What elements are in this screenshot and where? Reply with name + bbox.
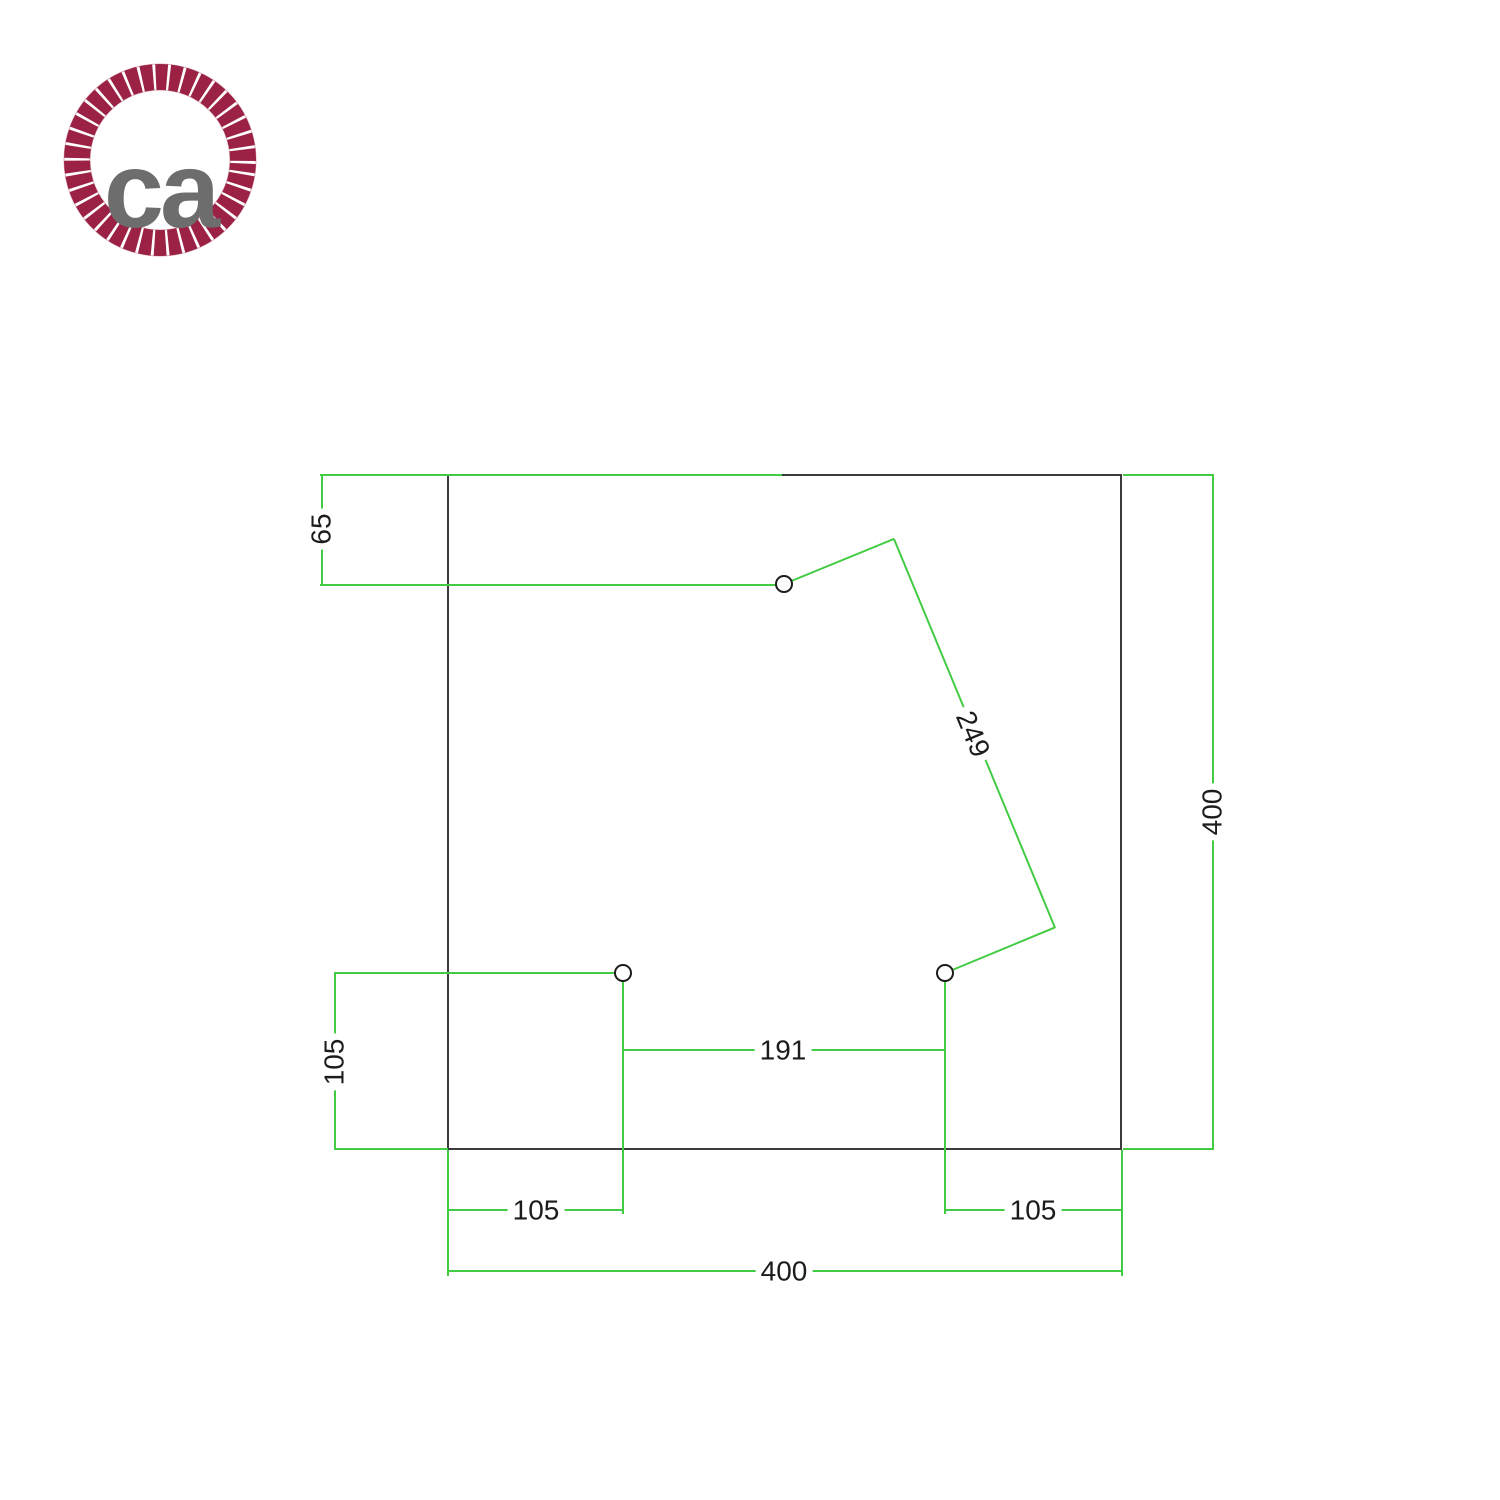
brand-logo: ca [62,62,258,258]
dim-label-top-hole-offset: 65 [306,508,335,549]
dim-label-plate-width: 400 [756,1256,813,1285]
extension-line-left-hole-level [335,972,623,974]
extension-line-top-right [1123,474,1213,476]
dim-label-bottom-left-offset: 105 [508,1195,565,1224]
dim-label-left-hole-height: 105 [319,1034,348,1091]
mounting-hole-bottom-left [614,964,632,982]
mounting-hole-top [775,575,793,593]
extension-line-bottom-left-hole [622,973,624,1214]
extension-line-left-corner-down [447,1150,449,1276]
dim-label-plate-height: 400 [1197,784,1226,841]
logo-text: ca [62,136,258,244]
dim-label-bottom-right-offset: 105 [1005,1195,1062,1224]
extension-line-bottom-left-corner [335,1148,448,1150]
extension-line-right-corner-down [1121,1150,1123,1276]
dim-label-bottom-holes-spacing: 191 [755,1035,812,1064]
ceiling-rose-drilling-diagram: ca 65 400 249 105 191 105 105 400 [0,0,1500,1500]
extension-line-bottom-right-hole [944,973,946,1214]
extension-line-top-left [320,474,782,476]
mounting-hole-bottom-right [936,964,954,982]
extension-line-bottom-right-corner [1123,1148,1213,1150]
extension-line-top-hole [320,584,784,586]
